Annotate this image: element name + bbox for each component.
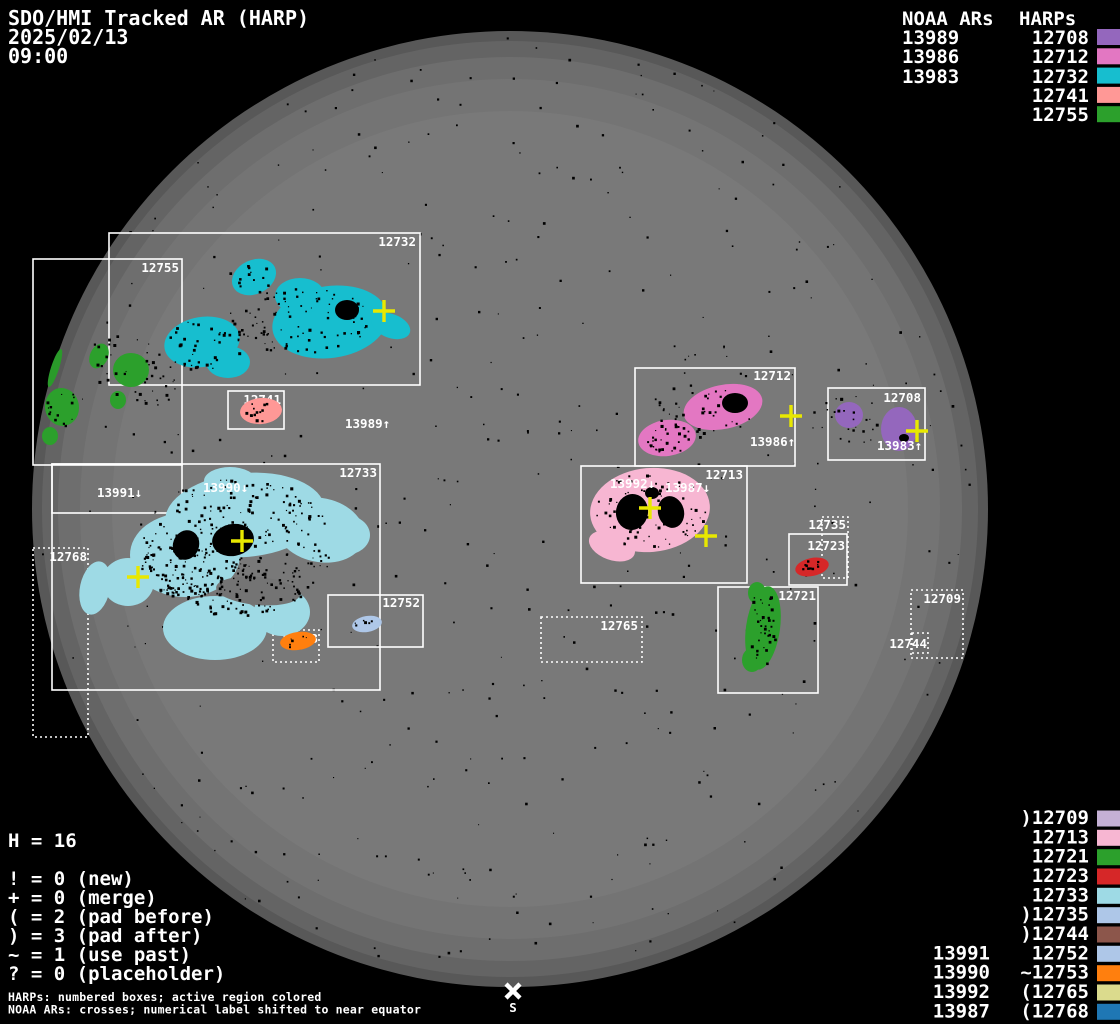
color-swatch-12744 [1097, 927, 1120, 943]
color-swatch-12755 [1097, 106, 1120, 122]
harp-box-label-12765: 12765 [600, 618, 638, 633]
color-swatch-12723 [1097, 869, 1120, 885]
color-swatch-12752 [1097, 946, 1120, 962]
color-swatch-12741 [1097, 87, 1120, 103]
flag-line: ? = 0 (placeholder) [8, 963, 225, 985]
noaa-label-13992: 13992↓ [610, 476, 655, 491]
color-swatch-12713 [1097, 830, 1120, 846]
sunspot-umbra-12712 [722, 393, 748, 413]
harp-box-label-12744: 12744 [889, 636, 927, 651]
solar-disk-plot: 12732 12755 12741 12733 12768 12752 1275… [0, 0, 1120, 1024]
color-swatch-12765 [1097, 985, 1120, 1001]
color-swatch-12708 [1097, 29, 1120, 45]
harp-box-label-12733: 12733 [339, 465, 377, 480]
color-swatch-12709 [1097, 811, 1120, 827]
noaa-item: 13987 [933, 1000, 990, 1022]
harp-item: (12768 [1020, 1000, 1089, 1022]
time-label: 09:00 [8, 44, 68, 68]
color-swatch-12732 [1097, 68, 1120, 84]
color-swatch-12735 [1097, 907, 1120, 923]
harp-box-label-12713: 12713 [705, 467, 743, 482]
color-swatch-12733 [1097, 888, 1120, 904]
harp-box-label-12732: 12732 [378, 234, 416, 249]
harp-box-label-12768: 12768 [49, 549, 87, 564]
color-swatch-12712 [1097, 48, 1120, 64]
harp-box-label-12708: 12708 [883, 390, 921, 405]
noaa-label-13986: 13986↑ [750, 434, 795, 449]
south-pole-label: S [509, 1000, 517, 1015]
noaa-label-13987: 13987↓ [665, 480, 710, 495]
harp-box-label-12712: 12712 [753, 368, 791, 383]
harp-box-label-12755: 12755 [141, 260, 179, 275]
harp-box-label-12723: 12723 [807, 538, 845, 553]
harp-box-label-12752: 12752 [382, 595, 420, 610]
harp-box-label-12735: 12735 [808, 517, 846, 532]
noaa-label-13991: 13991↓ [97, 485, 142, 500]
noaa-label-13990: 13990↓ [203, 480, 248, 495]
harp-box-label-12721: 12721 [778, 588, 816, 603]
noaa-label-13983: 13983↑ [877, 438, 922, 453]
harp-count: H = 16 [8, 830, 77, 852]
harp-box-label-12709: 12709 [923, 591, 961, 606]
harp-tracking-figure: 12732 12755 12741 12733 12768 12752 1275… [0, 0, 1120, 1024]
harp-item: 12712 [1032, 46, 1089, 68]
footer-line-noaa: NOAA ARs: crosses; numerical label shift… [8, 1003, 421, 1017]
noaa-label-13989: 13989↑ [345, 416, 390, 431]
noaa-item: 13983 [902, 66, 959, 88]
color-swatch-12768 [1097, 1004, 1120, 1020]
noaa-item: 13986 [902, 46, 959, 68]
harp-item: 12755 [1032, 104, 1089, 126]
color-swatch-12721 [1097, 849, 1120, 865]
color-swatch-12753 [1097, 965, 1120, 981]
